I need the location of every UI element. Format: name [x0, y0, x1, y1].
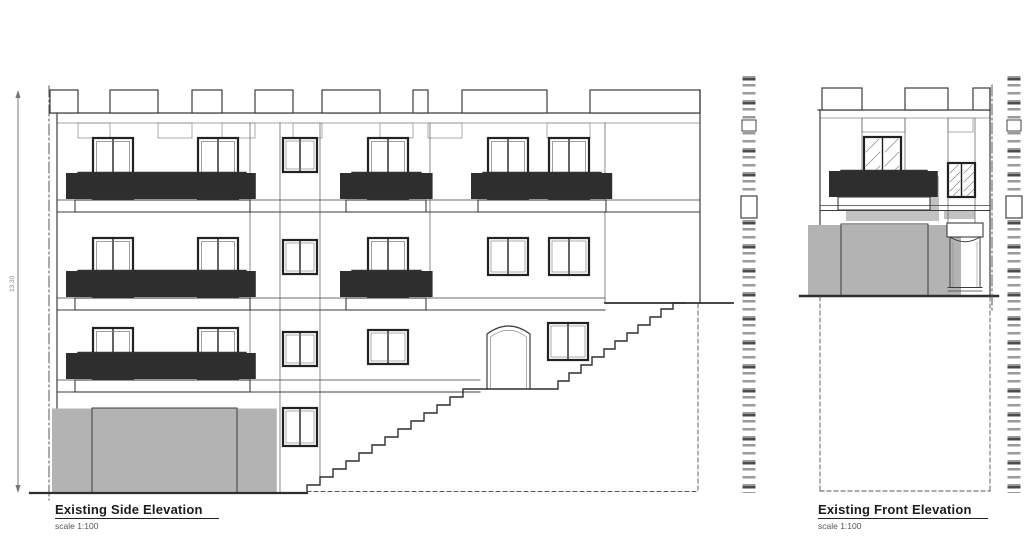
window: [488, 238, 528, 275]
side-elevation-title-block: Existing Side Elevation scale 1:100: [55, 501, 219, 531]
party-wall-strip: [741, 76, 757, 493]
garage-door: [92, 408, 237, 493]
window: [283, 332, 317, 366]
side-elevation: 13.30: [9, 86, 733, 500]
balcony-railing: [78, 271, 421, 285]
hatched-window: [948, 163, 975, 197]
street-stairs: [307, 303, 685, 493]
balcony-railing: [78, 173, 601, 187]
strip-marker-small: [1007, 120, 1021, 131]
dimension-value: 13.30: [9, 275, 16, 292]
height-dimension: 13.30: [9, 90, 21, 493]
strip-marker-small: [742, 120, 756, 131]
balcony-slab: [75, 380, 250, 392]
window: [283, 138, 317, 172]
window: [548, 323, 588, 360]
dimension-arrow-down: [15, 485, 20, 493]
balcony-railing: [78, 353, 246, 367]
balcony-slab: [75, 298, 426, 310]
balcony-slab: [75, 200, 606, 212]
strip-marker-large: [1006, 196, 1022, 218]
garage-door: [841, 224, 928, 296]
window: [549, 238, 589, 275]
ground-floor: [92, 408, 317, 493]
balcony-railing: [841, 171, 927, 185]
arched-doorway: [487, 326, 530, 389]
front-elevation-title-block: Existing Front Elevation scale 1:100: [818, 501, 988, 531]
side-elevation-scale: scale 1:100: [55, 521, 219, 531]
floor-2: [75, 238, 589, 310]
hidden-basement-outline: [307, 304, 698, 492]
window: [283, 240, 317, 274]
strip-marker-large: [741, 196, 757, 218]
drawing-canvas: 13.30: [0, 0, 1024, 546]
side-elevation-title: Existing Side Elevation: [55, 502, 219, 519]
floor-3: [75, 138, 606, 212]
balcony-slab: [838, 197, 930, 210]
front-elevation-scale: scale 1:100: [818, 521, 988, 531]
front-elevation-title: Existing Front Elevation: [818, 502, 988, 519]
hidden-basement-outline: [820, 297, 990, 491]
parapet-recessed-panels: [78, 123, 590, 138]
elevation-drawing-sheet: 13.30: [0, 0, 1024, 546]
party-wall-strip: [1006, 76, 1022, 493]
parapet-recessed-panels: [862, 118, 973, 132]
parapet: [818, 88, 990, 132]
window: [283, 408, 317, 446]
floor-1: [75, 323, 588, 392]
window: [368, 330, 408, 364]
front-elevation: [800, 85, 998, 491]
parapet: [50, 90, 700, 138]
dimension-arrow-up: [15, 90, 20, 98]
